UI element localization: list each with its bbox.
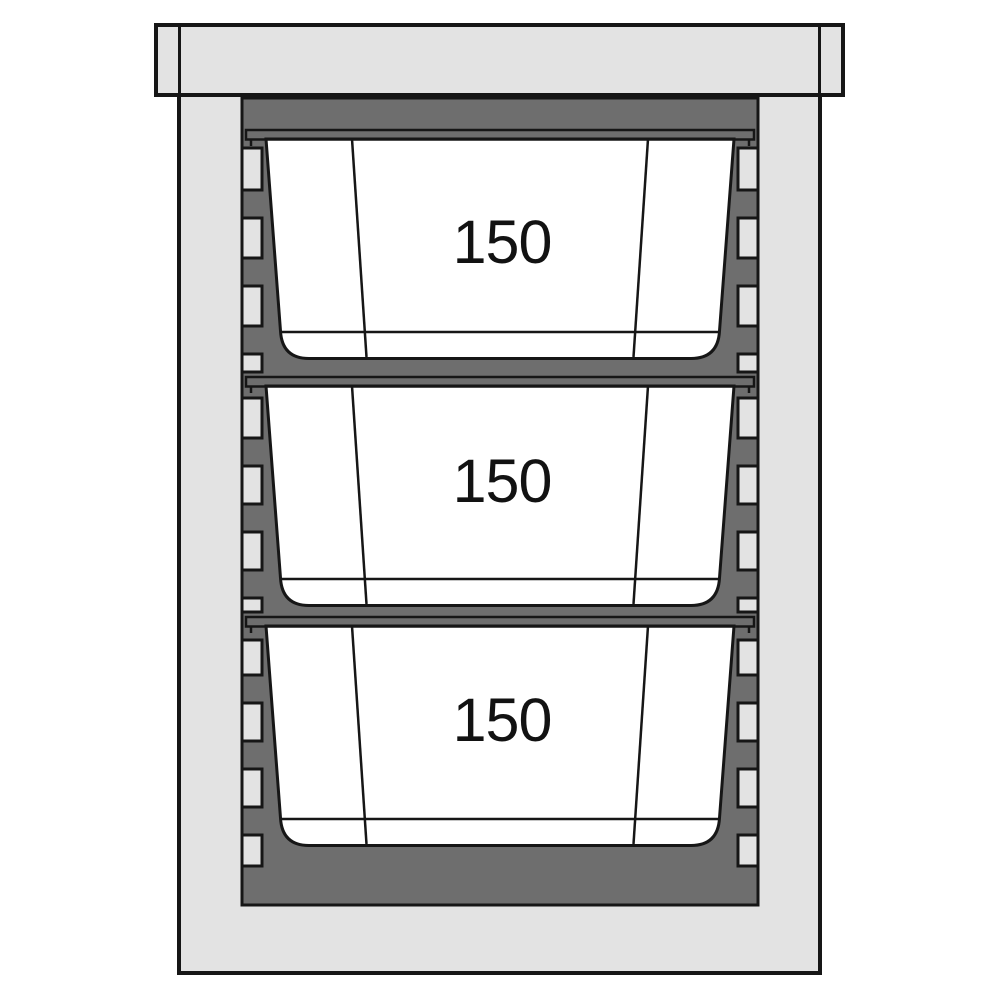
gn-pan-3: 150: [246, 617, 754, 846]
gn-pan-2: 150: [246, 377, 754, 606]
gn-pan-1: 150: [246, 130, 754, 359]
pan-depth-label: 150: [453, 686, 552, 754]
lid: [156, 25, 843, 95]
gn-carrier-cross-section: 150 150 150: [0, 0, 1000, 1000]
pan-depth-label: 150: [453, 208, 552, 276]
diagram-canvas: 150 150 150: [0, 0, 1000, 1000]
pan-depth-label: 150: [453, 447, 552, 515]
